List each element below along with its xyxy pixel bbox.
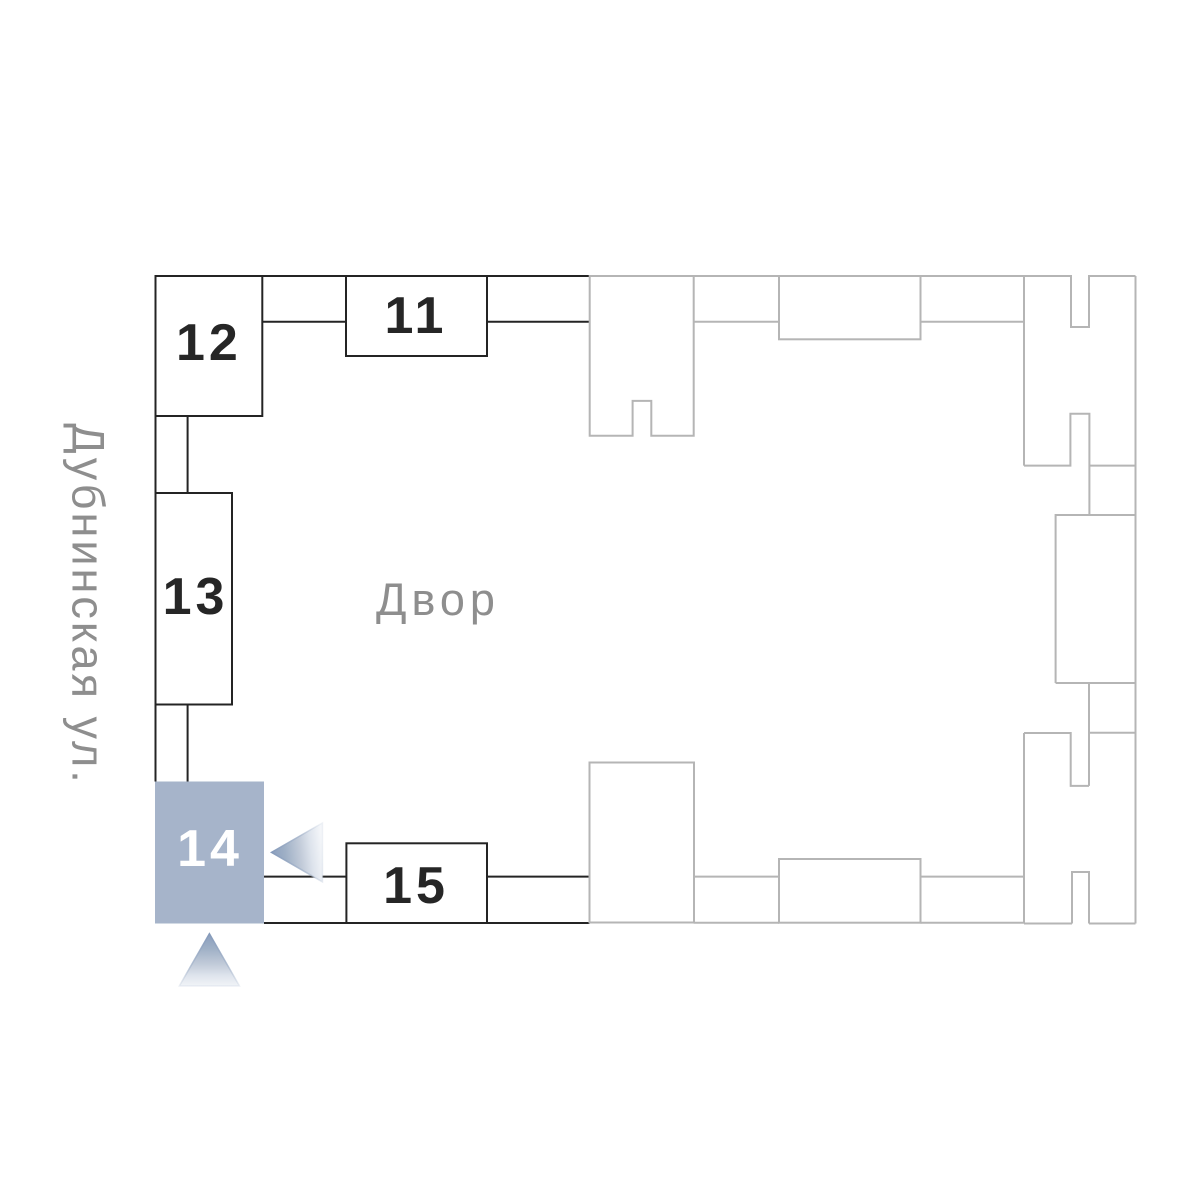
svg-text:12: 12 [176, 314, 242, 372]
svg-text:Дубнинская ул.: Дубнинская ул. [63, 423, 114, 785]
svg-text:15: 15 [383, 857, 449, 915]
svg-text:13: 13 [163, 568, 229, 626]
svg-text:11: 11 [385, 287, 448, 345]
svg-text:Двор: Двор [376, 574, 500, 625]
svg-text:14: 14 [177, 820, 243, 878]
